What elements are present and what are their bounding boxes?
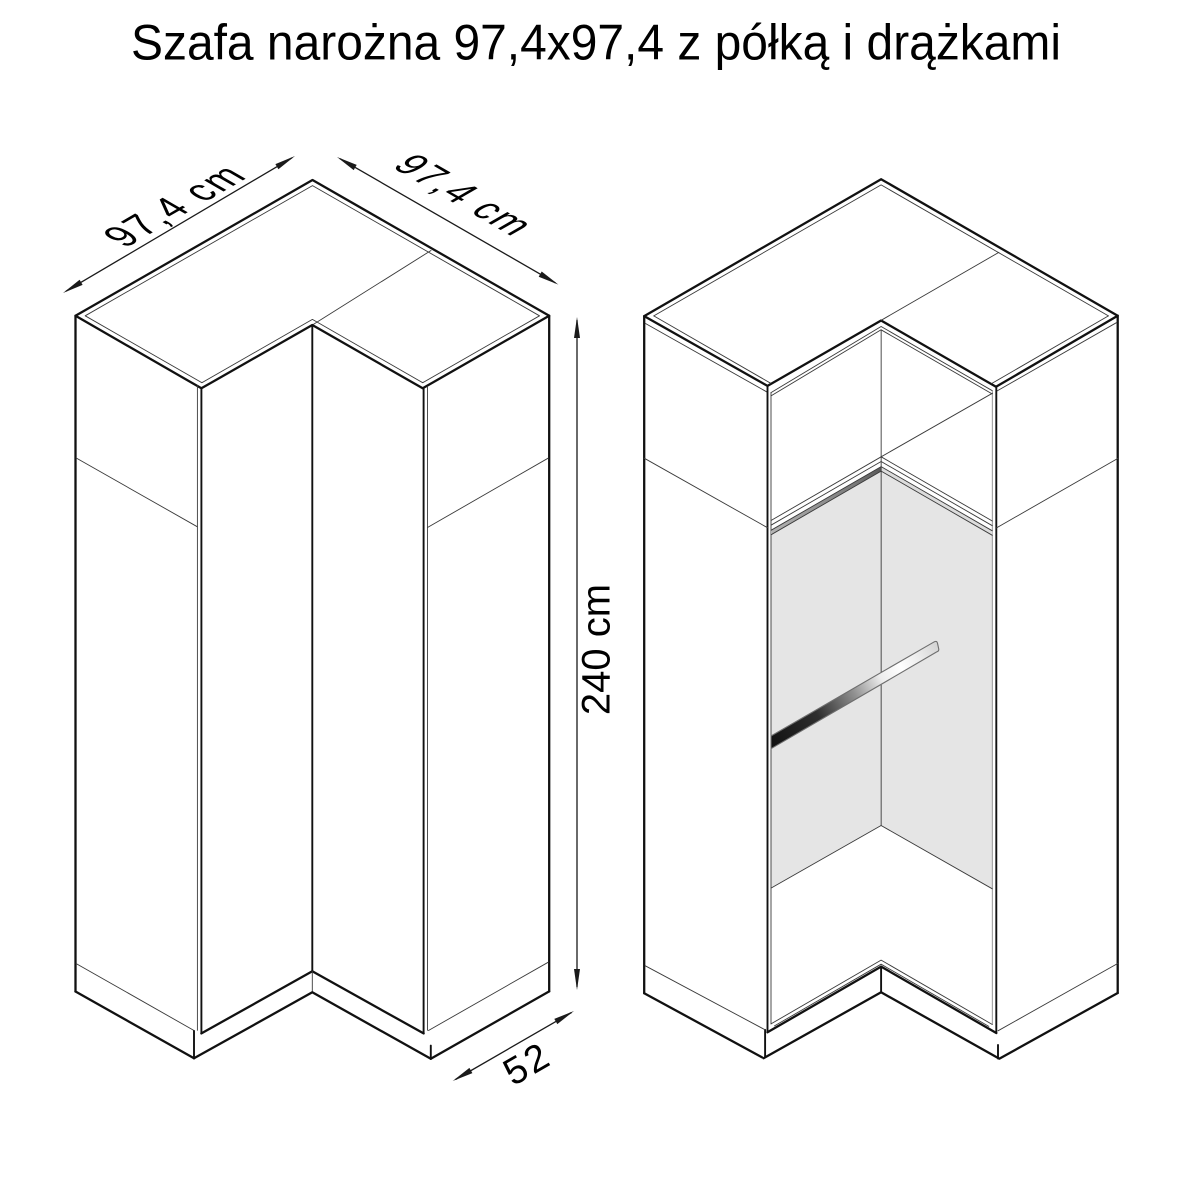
svg-text:97,4 cm: 97,4 cm — [383, 149, 546, 243]
svg-text:Szafa narożna 97,4x97,4 z półk: Szafa narożna 97,4x97,4 z półką i drążka… — [131, 15, 1061, 71]
svg-text:97,4 cm: 97,4 cm — [93, 158, 258, 253]
svg-text:240 cm: 240 cm — [575, 584, 619, 715]
svg-text:52: 52 — [497, 1034, 559, 1094]
